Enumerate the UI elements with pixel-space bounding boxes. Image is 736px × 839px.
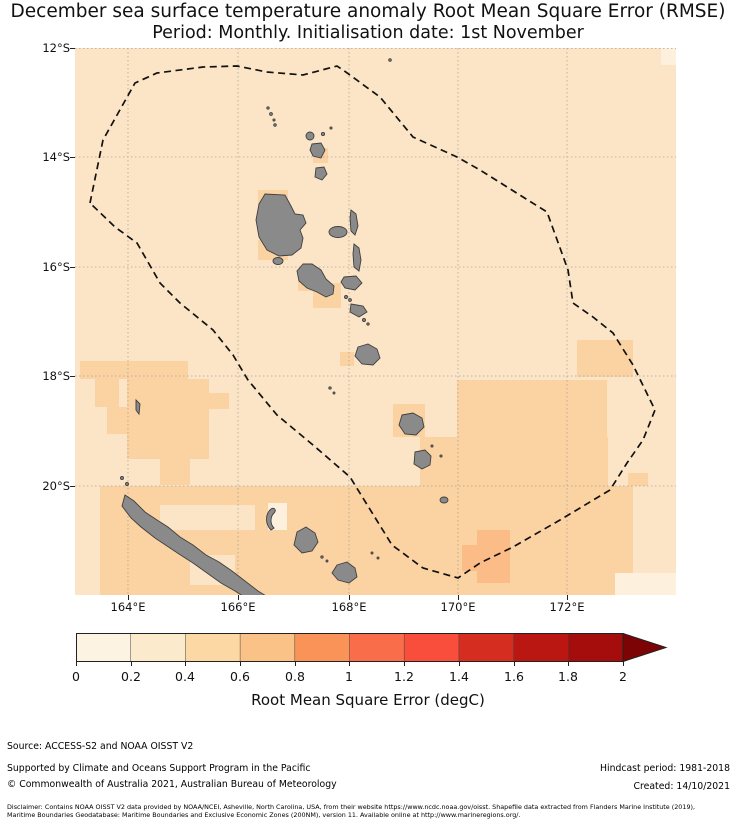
cbar-tick-label: 1.4 (437, 669, 481, 684)
rmse-cell-b4 (477, 530, 510, 583)
cbar-tick-label: 1.8 (546, 669, 590, 684)
colorbar-segment (514, 634, 569, 662)
rmse-cell-b3 (127, 379, 209, 459)
island-shepherd (363, 319, 366, 322)
lat-label: 14°S (26, 150, 70, 164)
colorbar-segment (76, 634, 131, 662)
cbar-tick (623, 661, 624, 666)
islet (329, 387, 331, 389)
colorbar-segment (350, 634, 405, 662)
cbar-tick (404, 661, 405, 666)
cbar-axis-label: Root Mean Square Error (degC) (0, 691, 736, 709)
footer-source: Source: ACCESS-S2 and NOAA OISST V2 (7, 741, 193, 752)
cbar-tick-label: 1 (327, 669, 371, 684)
island-ambae (329, 227, 347, 238)
lat-label: 20°S (26, 479, 70, 493)
cbar-tick-label: 1.6 (492, 669, 536, 684)
lat-tick (70, 376, 75, 377)
cbar-tick (514, 661, 515, 666)
rmse-cell-b3 (577, 340, 633, 377)
islet (321, 556, 323, 558)
lat-tick (70, 486, 75, 487)
rmse-cell-b2 (160, 505, 255, 530)
cbar-tick (295, 661, 296, 666)
island-torres (273, 119, 275, 121)
rmse-cell-b3 (95, 379, 119, 407)
islet (330, 127, 332, 129)
islet (371, 552, 373, 554)
lon-label: 168°E (319, 600, 379, 614)
colorbar-segment (404, 634, 459, 662)
colorbar-segment (185, 634, 240, 662)
rmse-cell-b4 (462, 545, 478, 571)
colorbar-extend-arrow (623, 634, 666, 662)
colorbar-segments (76, 634, 624, 662)
island-paama (345, 296, 348, 299)
islet (121, 477, 124, 480)
rmse-cell-b1 (615, 573, 676, 595)
rmse-cell-b3 (209, 393, 229, 409)
islet (377, 557, 379, 559)
cbar-tick-label: 0.6 (218, 669, 262, 684)
lon-label: 170°E (428, 600, 488, 614)
lon-label: 166°E (208, 600, 268, 614)
cbar-tick-label: 0.4 (163, 669, 207, 684)
lat-tick (70, 267, 75, 268)
islet (326, 560, 328, 562)
cbar-tick (568, 661, 569, 666)
island-lopevi (349, 299, 352, 302)
lat-tick (70, 48, 75, 49)
cbar-tick-label: 1.2 (382, 669, 426, 684)
lat-label: 12°S (26, 41, 70, 55)
rmse-cell-b1 (661, 48, 676, 65)
cbar-tick (131, 661, 132, 666)
footer-created-date: Created: 14/10/2021 (634, 781, 730, 792)
cbar-tick (240, 661, 241, 666)
footer-supported-by: Supported by Climate and Oceans Support … (7, 763, 310, 774)
lat-tick (70, 157, 75, 158)
cbar-tick (185, 661, 186, 666)
figure-title: December sea surface temperature anomaly… (11, 1, 726, 22)
rmse-cell-b3 (457, 380, 607, 437)
colorbar-segment (295, 634, 350, 662)
island-aniwa (431, 445, 433, 447)
figure-subtitle: Period: Monthly. Initialisation date: 1s… (152, 23, 584, 43)
island-torres (270, 113, 273, 116)
footer-disclaimer: Disclaimer: Contains NOAA OISST V2 data … (7, 803, 719, 819)
lat-label: 16°S (26, 260, 70, 274)
island-mota-lava (321, 132, 324, 135)
rmse-cell-b3 (160, 459, 190, 485)
colorbar (76, 633, 668, 663)
rmse-cell-b2 (633, 486, 676, 543)
footer-copyright: © Commonwealth of Australia 2021, Austra… (7, 779, 337, 790)
island-torres (267, 107, 269, 109)
cbar-tick-label: 0.2 (109, 669, 153, 684)
cbar-tick (459, 661, 460, 666)
lon-label: 172°E (537, 600, 597, 614)
cbar-tick-label: 0.8 (273, 669, 317, 684)
figure-canvas: December sea surface temperature anomaly… (0, 0, 736, 839)
footer-hindcast-period: Hindcast period: 1981-2018 (600, 763, 730, 774)
rmse-cell-b3 (420, 437, 608, 486)
islet (333, 392, 335, 394)
cbar-tick (349, 661, 350, 666)
islet (126, 483, 129, 486)
island-futuna (440, 455, 442, 457)
rmse-cell-b3 (628, 473, 648, 486)
map-plot-area (75, 48, 676, 595)
island-torres (274, 124, 277, 127)
rmse-cell-b2 (75, 543, 100, 578)
colorbar-segment (459, 634, 514, 662)
island-ureparapara (306, 132, 314, 140)
island-malo (273, 258, 283, 265)
island-aneityum (440, 497, 448, 503)
lat-label: 18°S (26, 369, 70, 383)
rmse-cell-b3 (340, 352, 354, 366)
islet (389, 59, 392, 62)
colorbar-segment (568, 634, 623, 662)
colorbar-segment (240, 634, 295, 662)
cbar-tick (76, 661, 77, 666)
colorbar-segment (131, 634, 186, 662)
island-shepherd (367, 323, 369, 325)
cbar-tick-label: 2 (601, 669, 645, 684)
rmse-cell-b3 (107, 407, 127, 434)
cbar-tick-label: 0 (54, 669, 98, 684)
lon-label: 164°E (98, 600, 158, 614)
